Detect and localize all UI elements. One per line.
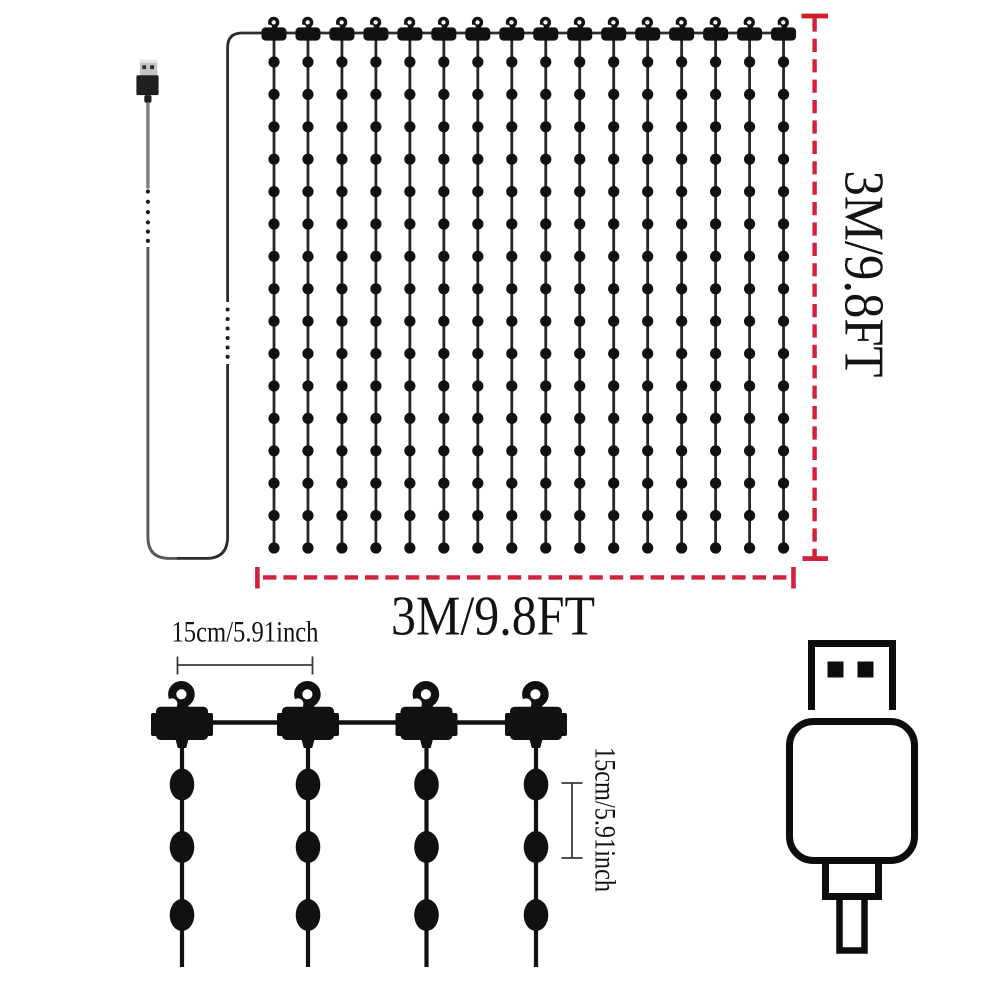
- svg-text:3M/9.8FT: 3M/9.8FT: [832, 171, 894, 378]
- svg-text:3M/9.8FT: 3M/9.8FT: [391, 586, 595, 648]
- svg-text:15cm/5.91inch: 15cm/5.91inch: [172, 617, 319, 649]
- svg-text:15cm/5.91inch: 15cm/5.91inch: [589, 747, 621, 892]
